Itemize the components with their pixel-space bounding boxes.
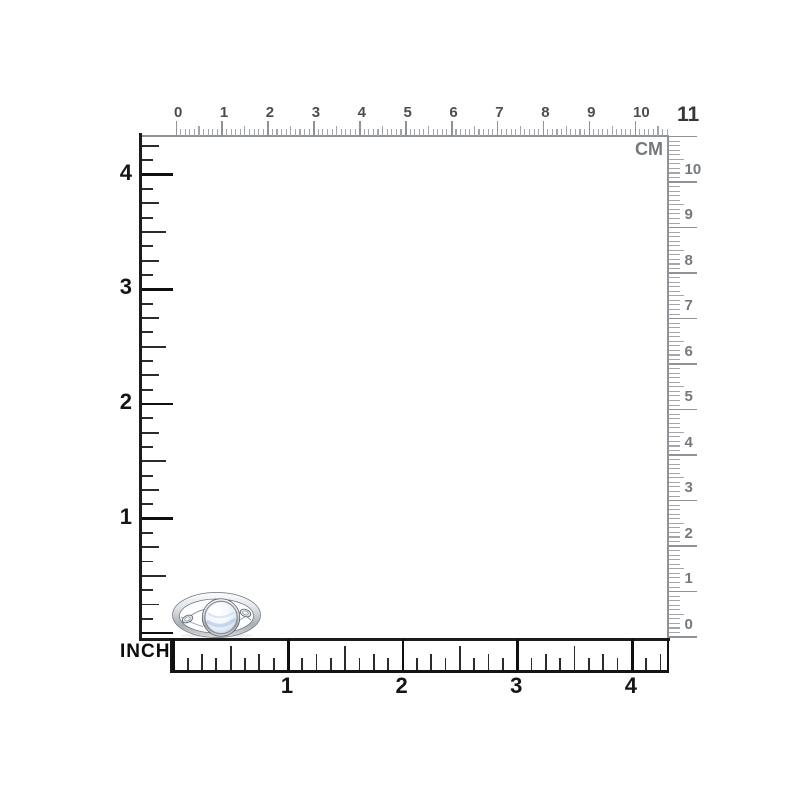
cm-tick (575, 129, 576, 137)
cm-tick (644, 129, 645, 137)
cm-tick (669, 204, 684, 205)
cm-tick (669, 532, 681, 533)
inch-tick (359, 658, 361, 671)
inch-tick (559, 658, 561, 671)
cm-tick (221, 121, 223, 136)
cm-tick (669, 186, 681, 187)
cm-tick (669, 395, 681, 396)
cm-tick (669, 141, 681, 142)
cm-tick (669, 286, 681, 287)
cm-tick (547, 129, 548, 137)
bottom-ruler-right-step (667, 638, 670, 673)
inch-tick (344, 646, 346, 670)
cm-tick (669, 391, 681, 392)
cm-tick (524, 129, 525, 137)
cm-tick (669, 518, 681, 519)
inch-tick (574, 646, 576, 670)
ruler-number: 3 (500, 675, 532, 697)
cm-tick (669, 227, 697, 229)
cm-tick (669, 263, 681, 264)
inch-tick (402, 639, 405, 670)
cm-tick (669, 605, 681, 606)
cm-tick (639, 129, 640, 137)
cm-tick (669, 454, 697, 456)
inch-tick (142, 417, 153, 419)
cm-tick (276, 129, 277, 137)
cm-tick (561, 129, 562, 137)
cm-tick (669, 314, 681, 315)
cm-tick (336, 126, 337, 137)
ruler-number: 7 (685, 298, 693, 313)
inch-tick (142, 503, 153, 505)
cm-tick (515, 129, 516, 137)
cm-tick (669, 373, 681, 374)
cm-corner-label: 11 (677, 104, 699, 125)
inch-tick (387, 658, 389, 671)
inch-tick (142, 489, 159, 491)
cm-tick (263, 129, 264, 137)
inch-tick (142, 360, 153, 362)
cm-tick (529, 129, 530, 137)
cm-tick (669, 573, 681, 574)
cm-tick (669, 600, 681, 601)
cm-tick (669, 327, 681, 328)
cm-tick (669, 627, 681, 628)
cm-tick (669, 191, 681, 192)
inch-tick (301, 658, 303, 671)
cm-tick (630, 129, 631, 137)
cm-tick (364, 129, 365, 137)
cm-tick (520, 126, 521, 137)
cm-tick (231, 129, 232, 137)
cm-tick (669, 259, 681, 260)
cm-tick (382, 126, 383, 137)
cm-tick (318, 129, 319, 137)
inch-tick (142, 532, 153, 534)
cm-tick (669, 500, 697, 502)
cm-tick (669, 468, 681, 469)
ruler-number: 0 (174, 105, 182, 120)
cm-tick (669, 354, 681, 355)
cm-tick (377, 129, 378, 137)
ruler-number: 3 (685, 480, 693, 495)
ruler-number: 1 (271, 675, 303, 697)
ruler-number: 4 (100, 162, 132, 184)
cm-tick (669, 618, 681, 619)
cm-tick (669, 614, 684, 615)
ruler-number: 4 (615, 675, 647, 697)
cm-tick (669, 368, 681, 369)
cm-tick (669, 405, 681, 406)
ruler-number: 3 (100, 276, 132, 298)
cm-tick (669, 545, 697, 547)
cm-tick (368, 129, 369, 137)
cm-tick (180, 129, 181, 137)
inch-tick (215, 658, 217, 671)
inch-tick (142, 217, 153, 219)
cm-tick (669, 291, 681, 292)
cm-tick (669, 136, 697, 138)
cm-tick (669, 382, 681, 383)
cm-tick (208, 129, 209, 137)
cm-tick (669, 509, 681, 510)
cm-tick (648, 129, 649, 137)
cm-tick (669, 272, 697, 274)
inch-tick (142, 403, 173, 406)
cm-tick (669, 514, 681, 515)
cm-tick (226, 129, 227, 137)
inch-tick (330, 658, 332, 671)
ruler-number: 5 (404, 105, 412, 120)
cm-unit-label: CM (618, 140, 663, 158)
cm-tick (669, 450, 681, 451)
inch-tick (142, 632, 173, 635)
cm-tick (469, 129, 470, 137)
cm-tick (295, 129, 296, 137)
inch-tick (459, 646, 461, 670)
cm-tick (669, 596, 681, 597)
cm-tick (244, 126, 245, 137)
cm-tick (460, 129, 461, 137)
cm-tick (584, 129, 585, 137)
cm-tick (669, 181, 697, 183)
inch-tick (142, 604, 159, 606)
inch-tick (142, 432, 159, 434)
cm-tick (669, 536, 681, 537)
cm-tick (669, 636, 697, 638)
cm-tick (254, 129, 255, 137)
cm-tick (669, 241, 681, 242)
cm-tick (669, 209, 681, 210)
inch-tick (142, 317, 159, 319)
cm-tick (350, 129, 351, 137)
cm-tick (451, 121, 453, 136)
cm-tick (669, 250, 684, 251)
cm-tick (669, 282, 681, 283)
cm-tick (304, 129, 305, 137)
cm-tick (249, 129, 250, 137)
cm-tick (669, 496, 681, 497)
cm-tick (669, 464, 681, 465)
product-measurement-image: CM 11 INCH 012345678910 109876543210 432… (0, 0, 800, 800)
moonstone-highlight (209, 606, 221, 614)
inch-tick (142, 374, 159, 376)
cm-tick (322, 129, 323, 137)
inch-unit-label: INCH (120, 642, 170, 661)
ruler-number: 1 (220, 105, 228, 120)
cm-tick (483, 129, 484, 137)
cm-tick (299, 129, 300, 137)
cm-tick (217, 129, 218, 137)
cm-tick (602, 129, 603, 137)
inch-tick (142, 303, 153, 305)
inch-tick (660, 654, 662, 671)
cm-tick (669, 541, 681, 542)
cm-tick (341, 129, 342, 137)
cm-tick (669, 254, 681, 255)
cm-tick (423, 129, 424, 137)
cm-tick (669, 154, 681, 155)
cm-tick (616, 129, 617, 137)
cm-tick (669, 436, 681, 437)
cm-tick (669, 587, 681, 588)
cm-tick (669, 505, 681, 506)
cm-tick (492, 129, 493, 137)
inch-tick (545, 654, 547, 671)
cm-tick (669, 172, 681, 173)
cm-tick (669, 163, 681, 164)
inch-tick (617, 658, 619, 671)
inch-tick (142, 475, 153, 477)
cm-tick (669, 427, 681, 428)
cm-tick (511, 129, 512, 137)
inch-tick (142, 446, 153, 448)
cm-tick (570, 129, 571, 137)
cm-tick (212, 129, 213, 137)
cm-tick (419, 129, 420, 137)
cm-tick (669, 336, 681, 337)
cm-tick (414, 129, 415, 137)
inch-tick (142, 346, 166, 348)
cm-tick (185, 129, 186, 137)
cm-tick (669, 350, 681, 351)
inch-tick (142, 561, 153, 563)
cm-tick (669, 341, 684, 342)
cm-tick (400, 129, 401, 137)
cm-tick (501, 129, 502, 137)
inch-tick (142, 173, 173, 176)
inch-tick (244, 658, 246, 671)
cm-tick (428, 126, 429, 137)
ruler-number: 7 (495, 105, 503, 120)
cm-tick (669, 195, 681, 196)
cm-tick (669, 559, 681, 560)
cm-tick (669, 564, 681, 565)
cm-tick (198, 126, 199, 137)
inch-tick (142, 274, 153, 276)
ruler-number: 10 (633, 105, 650, 120)
cm-tick (669, 159, 684, 160)
cm-tick (669, 218, 681, 219)
inch-tick (445, 658, 447, 671)
inch-tick (416, 658, 418, 671)
cm-tick (235, 129, 236, 137)
inch-tick (142, 188, 153, 190)
cm-tick (669, 268, 681, 269)
cm-tick (669, 418, 681, 419)
cm-tick (669, 232, 681, 233)
cm-tick (669, 409, 697, 411)
cm-tick (607, 129, 608, 137)
cm-tick (669, 441, 681, 442)
inch-tick (142, 546, 159, 548)
cm-tick (465, 129, 466, 137)
inch-tick (142, 245, 153, 247)
ruler-number: 4 (358, 105, 366, 120)
right-knot-stone (239, 608, 252, 619)
cm-tick (669, 168, 681, 169)
inch-tick (142, 202, 159, 204)
cm-tick (669, 482, 681, 483)
cm-tick (669, 236, 681, 237)
cm-tick (625, 129, 626, 137)
product-photo-moonstone-ring (171, 588, 262, 638)
cm-tick (497, 121, 499, 136)
cm-tick (332, 129, 333, 137)
cm-tick (373, 129, 374, 137)
inch-tick (142, 589, 153, 591)
cm-tick (669, 309, 681, 310)
cm-tick (669, 295, 684, 296)
cm-tick (669, 277, 681, 278)
inch-tick (645, 658, 647, 671)
cm-tick (359, 121, 361, 136)
cm-tick (281, 129, 282, 137)
ruler-number: 0 (685, 617, 693, 632)
inch-tick (142, 389, 153, 391)
ruler-number: 6 (449, 105, 457, 120)
inch-tick (473, 658, 475, 671)
inch-tick (588, 658, 590, 671)
cm-tick (474, 126, 475, 137)
cm-tick (669, 568, 684, 569)
inch-tick (142, 288, 173, 291)
cm-tick (286, 129, 287, 137)
cm-tick (667, 129, 668, 137)
cm-tick (355, 129, 356, 137)
cm-tick (240, 129, 241, 137)
inch-tick (373, 654, 375, 671)
inch-tick (142, 260, 159, 262)
cm-tick (556, 129, 557, 137)
ruler-number: 1 (100, 506, 132, 528)
inch-tick (516, 639, 519, 670)
inch-tick (201, 654, 203, 671)
inch-tick (316, 654, 318, 671)
cm-tick (669, 523, 684, 524)
cm-tick (669, 245, 681, 246)
cm-tick (669, 414, 681, 415)
cm-tick (635, 121, 637, 136)
cm-tick (405, 121, 407, 136)
cm-tick (669, 363, 697, 365)
inch-tick (142, 231, 166, 233)
cm-tick (669, 550, 681, 551)
cm-tick (657, 126, 658, 137)
cm-tick (669, 400, 681, 401)
cm-tick (391, 129, 392, 137)
cm-tick (478, 129, 479, 137)
cm-tick (203, 129, 204, 137)
cm-tick (176, 121, 178, 136)
cm-tick (669, 486, 681, 487)
cm-tick (669, 473, 681, 474)
cm-tick (621, 129, 622, 137)
cm-tick (258, 129, 259, 137)
ruler-number: 8 (541, 105, 549, 120)
ruler-number: 6 (685, 344, 693, 359)
ruler-number: 9 (685, 207, 693, 222)
cm-tick (534, 129, 535, 137)
cm-tick (669, 200, 681, 201)
cm-tick (669, 459, 681, 460)
cm-tick (194, 129, 195, 137)
cm-tick (566, 126, 567, 137)
inch-tick (287, 639, 290, 670)
ruler-number: 2 (266, 105, 274, 120)
bottom-ruler-baseline (170, 670, 670, 673)
ruler-number: 3 (312, 105, 320, 120)
cm-tick (669, 609, 681, 610)
inch-tick (142, 460, 166, 462)
inch-tick (142, 575, 166, 577)
cm-tick (669, 491, 681, 492)
cm-tick (653, 129, 654, 137)
cm-tick (543, 121, 545, 136)
cm-tick (410, 129, 411, 137)
cm-tick (669, 318, 697, 320)
cm-tick (267, 121, 269, 136)
cm-tick (669, 591, 697, 593)
ruler-number: 5 (685, 389, 693, 404)
inch-tick (631, 639, 634, 670)
cm-tick (387, 129, 388, 137)
cm-tick (446, 129, 447, 137)
cm-tick (309, 129, 310, 137)
cm-tick (538, 129, 539, 137)
cm-tick (669, 145, 681, 146)
frame-left-inch-edge (139, 133, 142, 639)
cm-tick (345, 129, 346, 137)
ruler-number: 4 (685, 435, 693, 450)
cm-tick (669, 555, 681, 556)
ruler-number: 2 (386, 675, 418, 697)
inch-tick (602, 654, 604, 671)
cm-tick (669, 445, 681, 446)
inch-tick (142, 517, 173, 520)
cm-tick (189, 129, 190, 137)
inch-tick (142, 331, 153, 333)
cm-tick (442, 129, 443, 137)
cm-tick (313, 121, 315, 136)
cm-tick (327, 129, 328, 137)
cm-tick (437, 129, 438, 137)
cm-tick (552, 129, 553, 137)
inch-tick (230, 646, 232, 670)
ruler-number: 2 (100, 391, 132, 413)
inch-tick (531, 658, 533, 671)
ruler-number: 2 (685, 526, 693, 541)
ruler-number: 8 (685, 253, 693, 268)
cm-tick (589, 121, 591, 136)
cm-tick (669, 150, 681, 151)
cm-tick (669, 577, 681, 578)
cm-tick (669, 527, 681, 528)
inch-tick (142, 159, 153, 161)
cm-tick (669, 345, 681, 346)
cm-tick (669, 332, 681, 333)
cm-tick (669, 323, 681, 324)
cm-tick (669, 632, 681, 633)
inch-tick (172, 639, 175, 670)
cm-tick (669, 623, 681, 624)
cm-tick (290, 126, 291, 137)
cm-tick (593, 129, 594, 137)
ruler-number: 10 (685, 162, 702, 177)
cm-tick (579, 129, 580, 137)
inch-tick (488, 654, 490, 671)
cm-tick (488, 129, 489, 137)
